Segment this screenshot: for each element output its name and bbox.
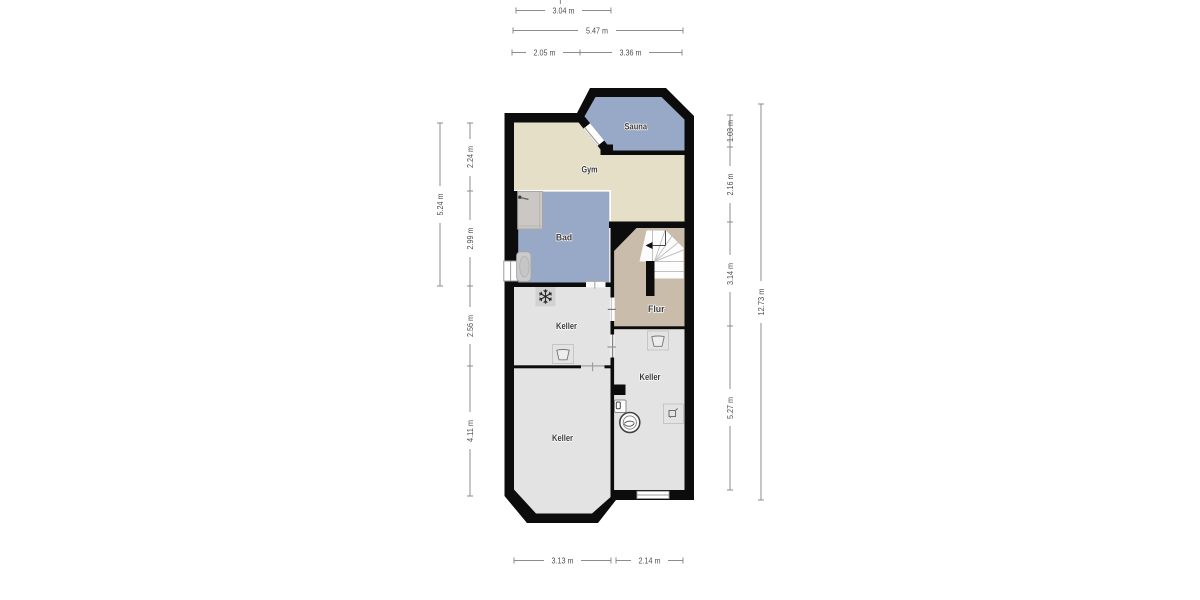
svg-text:2.24 m: 2.24 m: [466, 146, 475, 168]
svg-text:Keller: Keller: [640, 372, 661, 383]
svg-text:3.36 m: 3.36 m: [620, 49, 642, 58]
svg-text:2.16 m: 2.16 m: [726, 173, 735, 195]
svg-text:Bad: Bad: [556, 232, 572, 243]
svg-text:3.14 m: 3.14 m: [726, 263, 735, 285]
svg-text:Keller: Keller: [556, 321, 577, 332]
svg-text:3.13 m: 3.13 m: [552, 557, 574, 566]
svg-text:2.56 m: 2.56 m: [466, 315, 475, 337]
svg-text:12.73 m: 12.73 m: [757, 288, 766, 315]
svg-text:Flur: Flur: [648, 304, 665, 315]
svg-text:Gym: Gym: [582, 165, 598, 176]
svg-text:2.05 m: 2.05 m: [534, 49, 556, 58]
svg-text:4.11 m: 4.11 m: [466, 420, 475, 442]
svg-text:3.04 m: 3.04 m: [553, 7, 575, 16]
svg-text:Sauna: Sauna: [625, 121, 648, 132]
svg-text:2.14 m: 2.14 m: [639, 557, 661, 566]
svg-text:5.24 m: 5.24 m: [436, 193, 445, 215]
svg-text:Keller: Keller: [552, 433, 573, 444]
svg-text:1.03 m: 1.03 m: [726, 120, 735, 142]
svg-text:5.47 m: 5.47 m: [586, 27, 608, 36]
svg-text:2.99 m: 2.99 m: [466, 227, 475, 249]
svg-text:5.27 m: 5.27 m: [726, 397, 735, 419]
